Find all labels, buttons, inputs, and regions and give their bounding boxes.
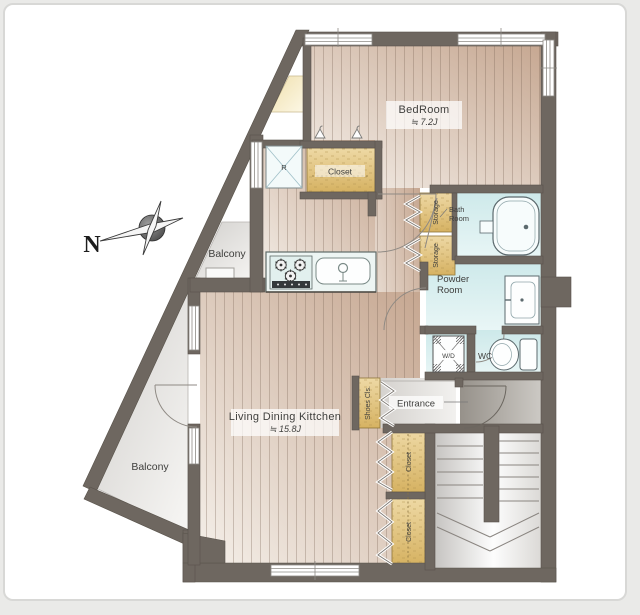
washer-dryer-label: W/D bbox=[442, 353, 455, 360]
refrigerator-label: R bbox=[281, 163, 287, 172]
wc-label: WC bbox=[478, 351, 492, 361]
svg-text:Room: Room bbox=[437, 285, 462, 296]
svg-text:≒ 7.2J: ≒ 7.2J bbox=[410, 117, 438, 127]
entry-alcove-floor bbox=[460, 380, 541, 428]
ldk-label: Living Dining Kittchen ≒ 15.8J bbox=[229, 409, 341, 436]
refrigerator-icon: R bbox=[266, 146, 302, 188]
svg-text:≒ 15.8J: ≒ 15.8J bbox=[269, 424, 302, 434]
svg-text:Powder: Powder bbox=[437, 274, 469, 285]
compass-icon: N bbox=[83, 201, 183, 258]
storage-upper-label: Storage bbox=[433, 200, 440, 225]
entrance-label: Entrance bbox=[389, 396, 468, 410]
washer-dryer-icon: W/D bbox=[433, 336, 464, 372]
svg-text:BedRoom: BedRoom bbox=[398, 104, 449, 116]
svg-text:Closet: Closet bbox=[328, 167, 353, 177]
storage-lower-label: Storage bbox=[433, 243, 440, 268]
bedroom-label: BedRoom ≒ 7.2J bbox=[386, 101, 462, 129]
shoes-closet-label: Shoes Cls. bbox=[365, 386, 372, 420]
kitchen-counter bbox=[266, 252, 376, 292]
window-top-left bbox=[305, 28, 372, 47]
toilet-icon bbox=[490, 339, 538, 370]
floor-plan-page: { "compass": { "north_label": "N" }, "ro… bbox=[0, 0, 640, 615]
closet-bottom-label: Closet bbox=[406, 522, 413, 542]
sink-icon bbox=[316, 258, 370, 284]
north-label: N bbox=[83, 232, 101, 258]
window-ldk-upper bbox=[189, 306, 199, 350]
closet-mid-label: Closet bbox=[406, 452, 413, 472]
window-top-right bbox=[458, 28, 545, 47]
floor-plan: R W/D BedRoom ≒ 7.2J bbox=[0, 0, 640, 615]
closet-top-label: Closet bbox=[315, 165, 365, 177]
lower-balcony-label: Balcony bbox=[131, 461, 169, 473]
svg-text:Entrance: Entrance bbox=[397, 399, 435, 410]
stove-icon bbox=[270, 256, 312, 289]
svg-text:Room: Room bbox=[449, 214, 469, 223]
window-kitchen bbox=[251, 142, 262, 188]
upper-balcony-label: Balcony bbox=[208, 248, 246, 260]
window-ldk-lower bbox=[189, 428, 199, 464]
vanity-sink-icon bbox=[505, 276, 539, 324]
svg-text:Living Dining Kittchen: Living Dining Kittchen bbox=[229, 411, 341, 423]
svg-text:Bath: Bath bbox=[449, 205, 464, 214]
